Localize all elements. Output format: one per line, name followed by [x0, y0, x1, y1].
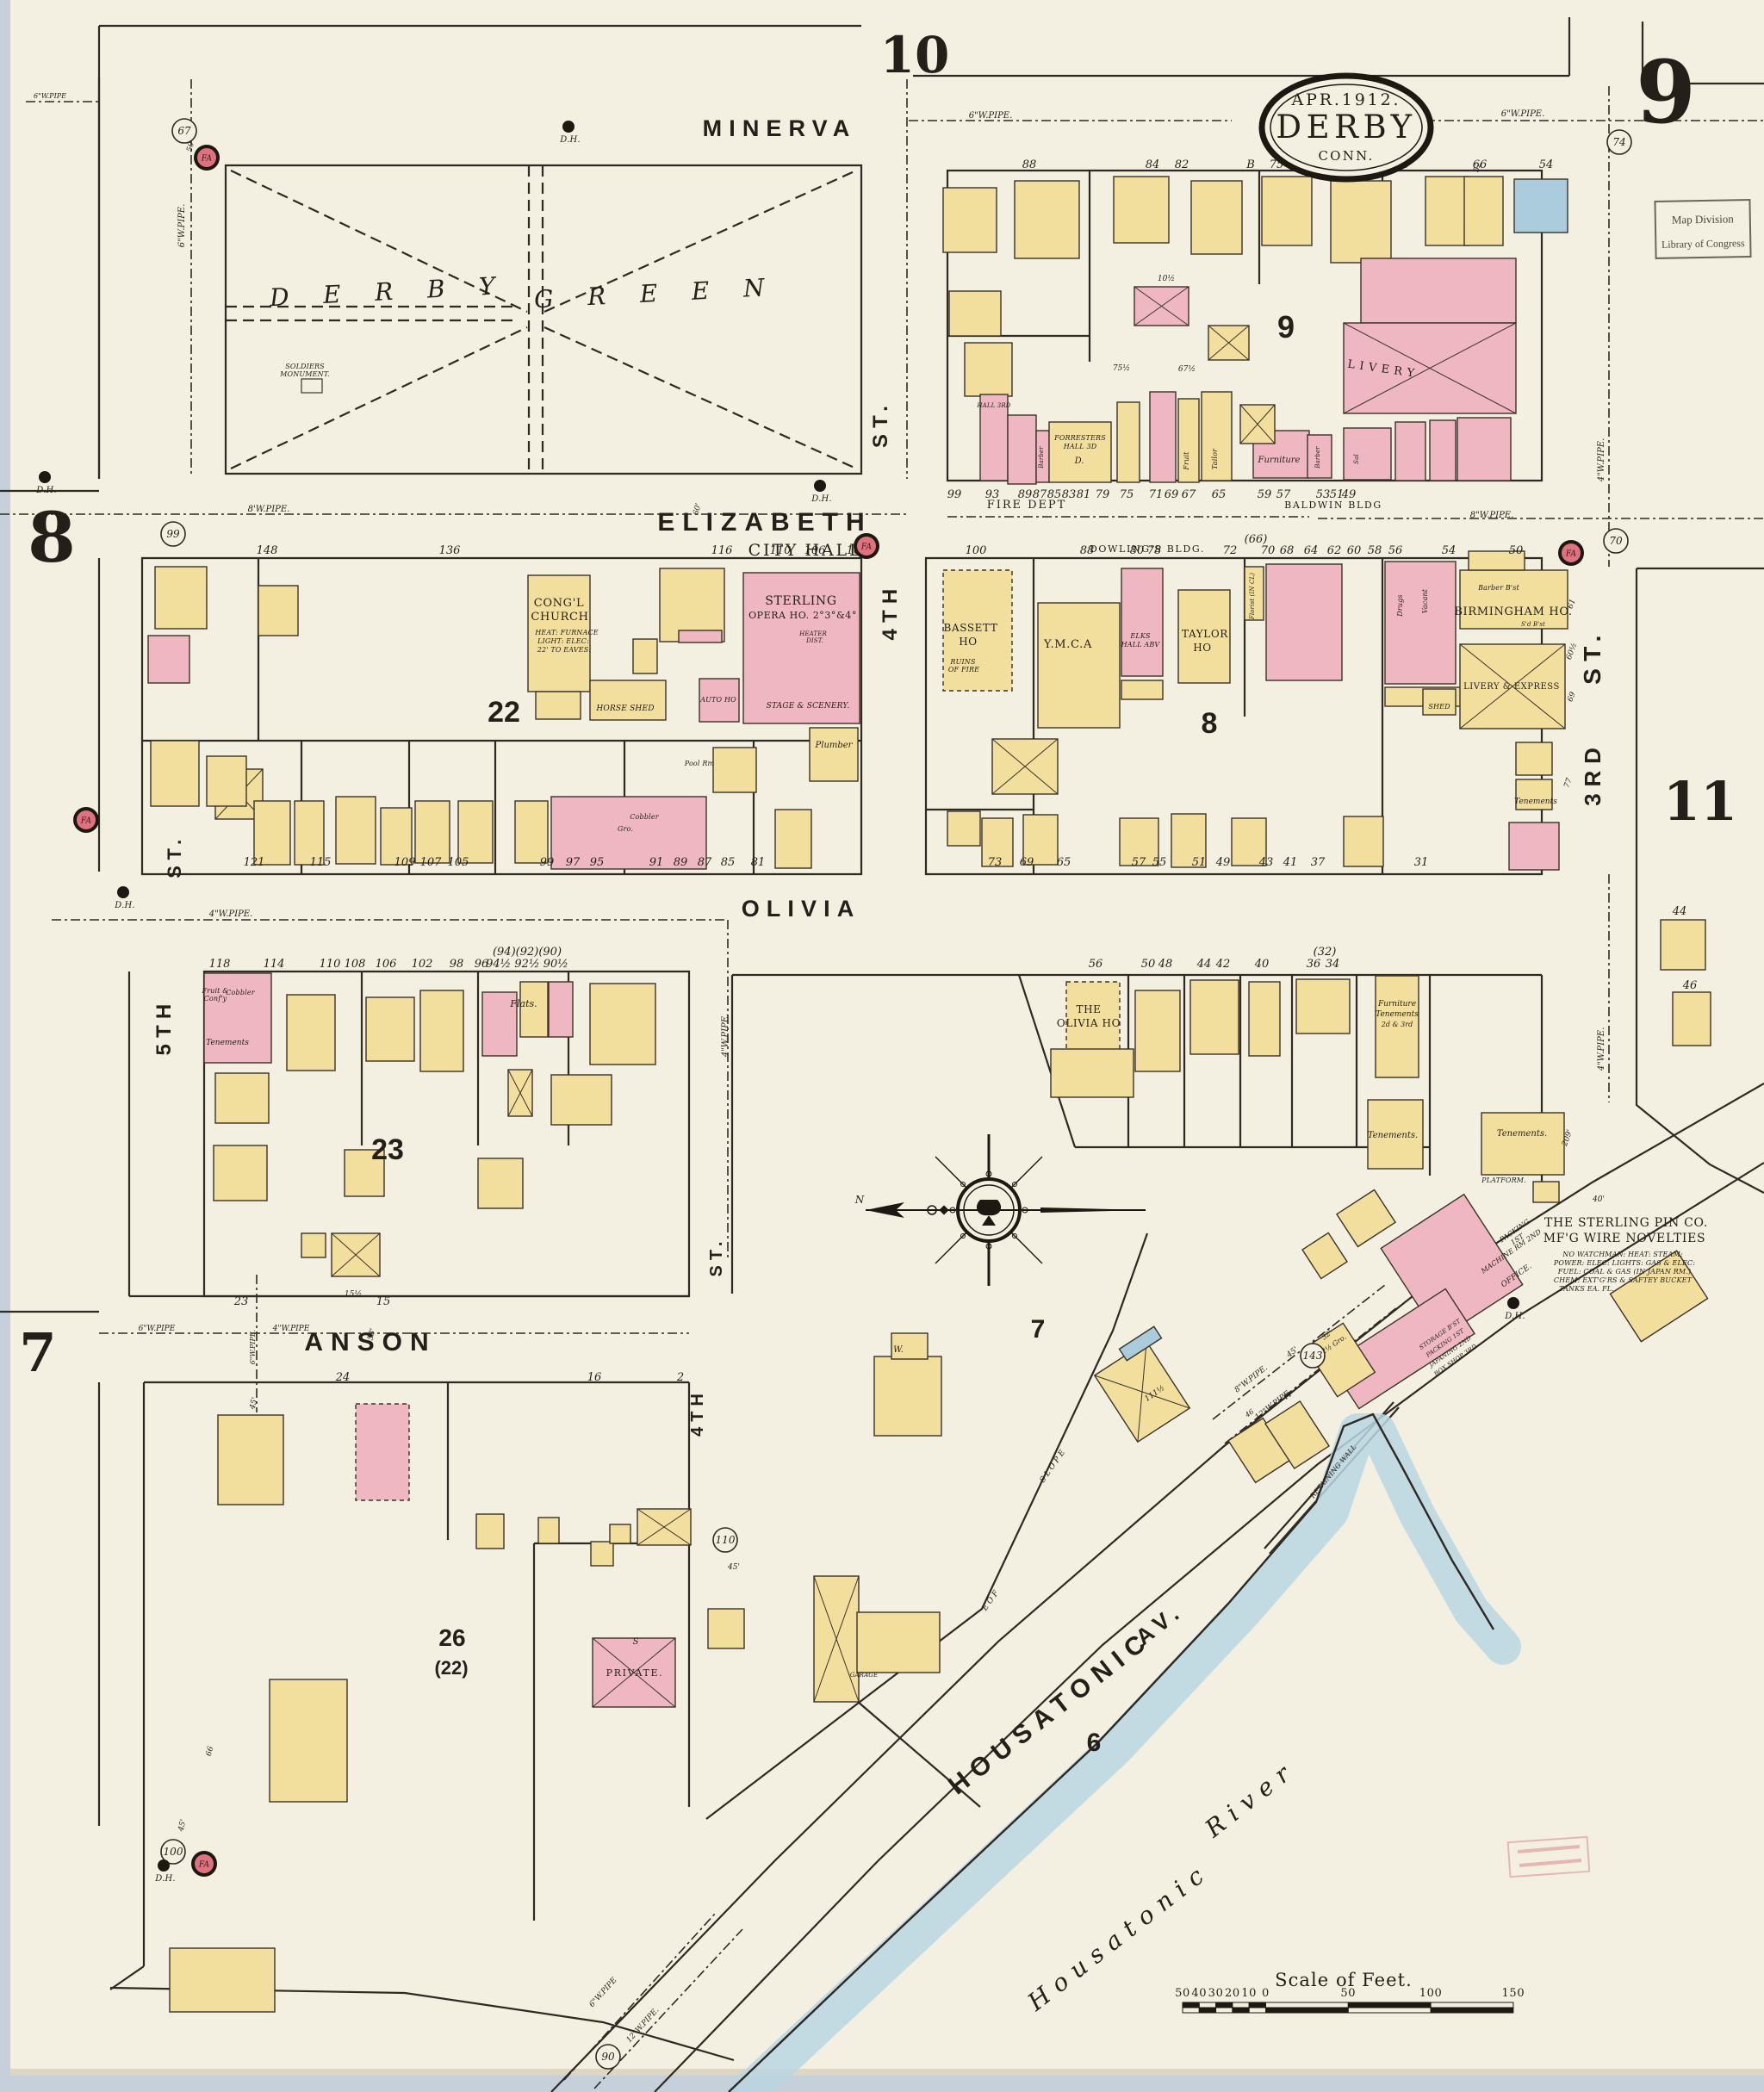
map-label: LIVERY & EXPRESS [1463, 682, 1560, 692]
building-footprint [610, 1524, 630, 1543]
map-label: SOLDIERS [285, 363, 325, 370]
map-label: Conf'y [204, 995, 227, 1003]
building [215, 1073, 269, 1123]
building-footprint [1514, 179, 1568, 233]
building [874, 1356, 941, 1436]
building-footprint [1049, 422, 1111, 482]
house-number: 72 [1223, 544, 1238, 557]
building [1514, 179, 1568, 233]
building-footprint [1344, 428, 1391, 480]
house-number: 40 [1254, 958, 1270, 971]
house-number: 110 [770, 544, 792, 557]
map-label: Furniture [1377, 1000, 1416, 1009]
house-number: B [1245, 158, 1255, 171]
building [508, 1070, 532, 1116]
building [1331, 181, 1391, 263]
house-number: 60 [1347, 544, 1362, 557]
building-footprint [590, 680, 666, 720]
map-label: Furniture [1258, 456, 1301, 465]
house-number: 87 [698, 856, 712, 869]
house-number: 83 [1062, 488, 1077, 501]
house-number: 44 [1196, 958, 1212, 971]
map-label: HO [959, 636, 978, 648]
map-label: Barber [1038, 446, 1045, 469]
building [1066, 982, 1120, 1051]
house-number: 80 [1130, 544, 1145, 557]
building-footprint [1673, 992, 1711, 1046]
building-footprint [857, 1612, 940, 1673]
building [1262, 177, 1312, 245]
map-label: TAYLOR [1182, 628, 1228, 640]
building [258, 586, 298, 636]
building [1457, 418, 1511, 481]
building [814, 1576, 859, 1702]
building-footprint [476, 1514, 504, 1549]
building-footprint [214, 1145, 267, 1201]
building [1673, 992, 1711, 1046]
building [420, 990, 463, 1071]
building-footprint [478, 1158, 523, 1208]
valve-circle-number: 143 [1303, 1350, 1323, 1362]
building-footprint [1191, 181, 1242, 254]
map-label: 9 [1277, 309, 1295, 345]
building [1464, 177, 1503, 245]
building [1425, 177, 1469, 245]
scale-tick-label: 0 [1262, 1987, 1270, 2000]
map-label: LIGHT: ELEC: [537, 637, 589, 645]
fire-alarm-label: FA [198, 1861, 210, 1870]
building [1114, 177, 1169, 243]
scale-bar-cell [1183, 2008, 1199, 2013]
map-label: Plumber [815, 741, 854, 750]
building-footprint [151, 741, 199, 806]
building-footprint [1114, 177, 1169, 243]
double-hydrant-marker [814, 480, 826, 492]
scale-bar-cell [1348, 2002, 1431, 2008]
scale-bar-cell [1216, 2002, 1233, 2008]
building-footprint [1296, 979, 1350, 1034]
building [551, 1075, 612, 1125]
map-label: 10 [880, 26, 950, 84]
map-label: MINERVA [703, 115, 857, 141]
valve-circle-number: 110 [716, 1534, 736, 1546]
building-footprint [1425, 177, 1469, 245]
scale-tick-label: 20 [1225, 1987, 1240, 2000]
building [336, 797, 376, 864]
building [591, 1542, 613, 1566]
building [679, 630, 722, 642]
map-label: ST. [707, 1237, 726, 1277]
house-number: 51 [1192, 856, 1207, 869]
building [538, 1518, 559, 1543]
house-number: 65 [1057, 856, 1071, 869]
building [810, 728, 858, 781]
building-footprint [1344, 816, 1383, 866]
map-label: Florist (IN CL) [1249, 573, 1256, 620]
building-footprint [148, 636, 189, 683]
building-footprint [708, 1609, 744, 1648]
map-label: OLIVIA [742, 896, 861, 922]
building-footprint [215, 1073, 269, 1123]
house-number: 50 [1141, 958, 1156, 971]
house-number: 55 [1152, 856, 1167, 869]
sanborn-map-sheet: MINERVAELIZABETHOLIVIAANSONHOUSATONICAV.… [0, 0, 1764, 2092]
building-footprint [258, 586, 298, 636]
map-label: PRIVATE. [606, 1667, 664, 1679]
map-label: Cobbler [630, 813, 659, 821]
map-label: BIRMINGHAM HO. [1454, 605, 1572, 618]
map-label: 6"W.PIPE. [1501, 109, 1545, 119]
building-footprint [1008, 415, 1036, 484]
map-label: Sal [1353, 454, 1360, 464]
building [1460, 570, 1568, 629]
house-number: 91 [649, 856, 664, 869]
building-footprint [1361, 258, 1516, 323]
map-label: POWER: ELEC: LIGHTS: GAS & ELEC: [1553, 1259, 1695, 1267]
map-label: SHED [1428, 703, 1450, 711]
house-number: 75 [1120, 488, 1134, 501]
map-label: Tenements [206, 1039, 249, 1047]
map-canvas: MINERVAELIZABETHOLIVIAANSONHOUSATONICAV.… [0, 0, 1764, 2092]
building-footprint [549, 982, 573, 1037]
building-footprint [366, 997, 414, 1061]
building-footprint [170, 1948, 275, 2012]
building-footprint [775, 810, 811, 868]
building [1190, 980, 1239, 1054]
map-label: Gro. [618, 825, 633, 833]
house-number: 107 [420, 856, 443, 869]
building [1361, 258, 1516, 323]
house-number: 49 [1215, 856, 1231, 869]
building-footprint [1150, 392, 1176, 482]
building [947, 811, 980, 846]
map-label: HALL ABV [1121, 641, 1161, 649]
map-label: 4"W.PIPE. [1597, 438, 1606, 483]
scale-bar-cell [1216, 2008, 1233, 2013]
house-number: 54 [1442, 544, 1457, 557]
map-label: Barber [1314, 446, 1321, 469]
building [590, 984, 655, 1065]
map-label: PLATFORM. [1481, 1176, 1526, 1184]
map-label: Fruit [1183, 451, 1190, 471]
building-footprint [287, 995, 335, 1071]
house-number: 99 [947, 488, 962, 501]
map-label: 8 [28, 497, 76, 578]
map-label: 4TH [688, 1388, 707, 1437]
building-footprint [155, 567, 207, 629]
map-label: AUTO HO [699, 696, 736, 704]
building-footprint [947, 811, 980, 846]
building-footprint [874, 1356, 941, 1436]
map-label: 4"W.PIPE [272, 1325, 310, 1333]
building-footprint [1015, 181, 1079, 258]
building [1038, 603, 1120, 728]
house-number: 105 [448, 856, 469, 869]
building [476, 1514, 504, 1549]
title-date: APR.1912. [1291, 90, 1401, 109]
building-footprint [520, 982, 548, 1037]
building [1533, 1182, 1559, 1202]
house-number: 89 [674, 856, 688, 869]
map-label: 8"W.PIPE. [1470, 511, 1514, 520]
building-footprint [458, 801, 493, 863]
building [301, 379, 322, 393]
building [287, 995, 335, 1071]
map-label: TANKS EA. FL. [1559, 1285, 1614, 1293]
building-footprint [538, 1518, 559, 1543]
house-number: 82 [1175, 158, 1189, 171]
map-label: MF'G WIRE NOVELTIES [1543, 1232, 1706, 1245]
house-number: 118 [209, 958, 231, 971]
double-hydrant-marker [158, 1859, 170, 1872]
map-label: W. [893, 1345, 904, 1355]
scale-bar-cell [1266, 2008, 1349, 2013]
building-footprint [1385, 562, 1456, 684]
scale-bar-cell [1249, 2008, 1265, 2013]
map-label: HORSE SHED [595, 705, 654, 713]
map-label: 45' [727, 1563, 740, 1572]
map-label: 5TH [152, 998, 176, 1056]
scale-bar-cell [1199, 2002, 1215, 2008]
scale-tick-label: 50 [1340, 1987, 1356, 2000]
building-footprint [1457, 418, 1511, 481]
house-number: 68 [1280, 544, 1295, 557]
double-hydrant-marker [1507, 1297, 1519, 1309]
building-footprint [515, 801, 548, 863]
map-label: 40' [1592, 1195, 1605, 1204]
map-label: HEAT: FURNACE [534, 629, 599, 636]
building [478, 1158, 523, 1208]
building [148, 636, 189, 683]
scale-bar-cell [1431, 2002, 1513, 2008]
building [170, 1948, 275, 2012]
house-number: 36 [1307, 958, 1321, 971]
house-number: 16 [587, 1371, 602, 1384]
building-footprint [1121, 680, 1163, 699]
house-number: 121 [244, 856, 265, 869]
scale-bar-cell [1431, 2008, 1513, 2013]
building-footprint [218, 1415, 283, 1505]
house-number: 57 [1132, 856, 1146, 869]
map-label: 22 [488, 696, 520, 729]
scale-tick-label: 50 [1175, 1987, 1190, 2000]
map-label: 6"W.PIPE. [969, 111, 1013, 121]
building [1266, 564, 1342, 680]
map-label: D. [1074, 456, 1084, 466]
map-label: OLIVIA HO [1057, 1017, 1121, 1029]
house-number: 87 [1033, 488, 1047, 501]
building [965, 343, 1012, 396]
house-number: 59 [1258, 488, 1272, 501]
building [1385, 562, 1456, 684]
building-footprint [295, 801, 324, 865]
building-footprint [1038, 603, 1120, 728]
building-footprint [1430, 420, 1456, 481]
map-label: CHURCH [531, 611, 588, 624]
double-hydrant-marker [117, 886, 129, 898]
building [254, 801, 290, 865]
valve-circle-number: 99 [166, 528, 180, 540]
scale-bar-cell [1348, 2008, 1431, 2013]
building-footprint [207, 756, 246, 806]
map-label: OF FIRE [948, 666, 979, 674]
house-number: 93 [985, 488, 1000, 501]
double-hydrant-label: D.H. [559, 135, 581, 145]
building [151, 741, 199, 806]
building [775, 810, 811, 868]
map-label: HALL 3RD [976, 402, 1010, 409]
map-label: ST. [164, 834, 185, 878]
house-number: 49 [1341, 488, 1357, 501]
house-number: 2 [676, 1371, 684, 1384]
building-footprint [336, 797, 376, 864]
building [1249, 982, 1280, 1056]
map-label: Drugs [1396, 594, 1404, 617]
house-number: 88 [1022, 158, 1037, 171]
building-footprint [301, 379, 322, 393]
map-label: NO WATCHMAN: HEAT: STEAM: [1562, 1251, 1683, 1258]
map-label: 4"W.PIPE. [1597, 1027, 1606, 1072]
map-label: 26 [438, 1624, 465, 1651]
house-number: 54 [1539, 158, 1554, 171]
building-footprint [1051, 1049, 1134, 1097]
building [992, 739, 1058, 794]
building-footprint [1464, 177, 1503, 245]
building-footprint [1262, 177, 1312, 245]
building [1208, 326, 1249, 360]
valve-circle-number: 100 [164, 1846, 183, 1858]
house-number: 81 [751, 856, 766, 869]
title-city: DERBY [1276, 109, 1416, 146]
building-footprint [1249, 982, 1280, 1056]
building [1395, 422, 1425, 481]
building [1344, 428, 1391, 480]
building-footprint [415, 801, 450, 863]
building [536, 692, 581, 719]
building-footprint [301, 1233, 326, 1257]
building-footprint [551, 1075, 612, 1125]
building [590, 680, 666, 720]
map-label: 6"W.PIPE. [177, 204, 187, 248]
house-number: 97 [566, 856, 581, 869]
building [356, 1404, 409, 1500]
map-label: GARAGE [850, 1672, 879, 1679]
house-number: 99 [540, 856, 555, 869]
building [1191, 181, 1242, 254]
building-footprint [1117, 402, 1140, 482]
house-number: 115 [310, 856, 332, 869]
building [1661, 920, 1705, 970]
scale-tick-label: 40 [1191, 1987, 1207, 2000]
house-number: 43 [1258, 856, 1274, 869]
stamp-line1: Map Division [1672, 212, 1735, 226]
map-label: ELIZABETH [657, 508, 872, 537]
building-footprint [633, 639, 657, 674]
building [549, 982, 573, 1037]
map-label: Pool Rm [684, 760, 715, 767]
building [1344, 816, 1383, 866]
building [207, 756, 246, 806]
house-number: 24 [335, 1371, 351, 1384]
building [610, 1524, 630, 1543]
title-cartouche: APR.1912. DERBY CONN. [1262, 76, 1431, 179]
building-footprint [1460, 570, 1568, 629]
building-footprint [810, 728, 858, 781]
fire-alarm-label: FA [860, 543, 873, 552]
map-label: 3RD [1580, 741, 1606, 805]
house-number: 71 [1149, 488, 1164, 501]
map-label: 9 [1636, 41, 1696, 143]
building [633, 639, 657, 674]
house-number: 64 [1304, 544, 1319, 557]
house-number: 110 [320, 958, 341, 971]
scale-bar-cell [1266, 2002, 1349, 2008]
building [458, 801, 493, 863]
scale-bar-cell [1233, 2008, 1249, 2013]
valve-circle-number: 70 [1609, 535, 1623, 547]
building-footprint [1481, 1113, 1564, 1175]
double-hydrant-label: D.H. [811, 494, 832, 504]
building [1049, 422, 1111, 482]
map-label: 7 [1031, 1315, 1046, 1344]
map-label: 22' TO EAVES: [537, 646, 592, 654]
map-label: 8'W.PIPE. [248, 505, 290, 514]
compass-north-letter: N [854, 1194, 865, 1206]
building-footprint [1516, 742, 1552, 775]
building [708, 1609, 744, 1648]
building-footprint [420, 990, 463, 1071]
map-label: STAGE & SCENERY. [767, 702, 850, 711]
building [949, 291, 1001, 336]
map-label: (22) [434, 1657, 468, 1679]
scale-tick-label: 100 [1419, 1987, 1443, 2000]
map-label: Y.M.C.A [1043, 638, 1092, 651]
stamp-line2: Library of Congress [1662, 237, 1745, 251]
map-label: 75½ [1113, 363, 1130, 373]
house-number: 31 [1414, 856, 1429, 869]
house-number: 79 [1096, 488, 1110, 501]
double-hydrant-marker [39, 471, 51, 483]
building-footprint [713, 748, 756, 792]
fire-alarm-label: FA [80, 817, 92, 826]
house-number: 65 [1212, 488, 1227, 501]
scale-tick-label: 10 [1241, 1987, 1257, 2000]
house-number: 85 [1047, 488, 1062, 501]
house-number: 48 [1158, 958, 1173, 971]
map-label: Tenements. [1368, 1131, 1418, 1140]
building [415, 801, 450, 863]
building [515, 801, 548, 863]
house-number: 42 [1215, 958, 1231, 971]
scale-tick-label: 150 [1502, 1987, 1525, 2000]
building [637, 1509, 691, 1545]
fire-alarm-label: FA [201, 155, 213, 164]
map-label: 4"W.PIPE. [208, 909, 253, 919]
map-label: ST. [1579, 628, 1606, 685]
map-label: S [633, 1637, 639, 1647]
map-label: 10½ [1158, 274, 1175, 283]
house-number: 95 [590, 856, 605, 869]
fire-alarm-label: FA [1565, 550, 1577, 559]
paper-edge-shadow [10, 2069, 1764, 2076]
building [857, 1612, 940, 1673]
building [1509, 823, 1559, 870]
map-label: 4"W.PIPE. [721, 1014, 730, 1058]
house-number: (32) [1314, 946, 1337, 959]
building [1240, 405, 1275, 444]
title-state: CONN. [1318, 148, 1374, 164]
map-label: Tenements [1376, 1010, 1419, 1019]
